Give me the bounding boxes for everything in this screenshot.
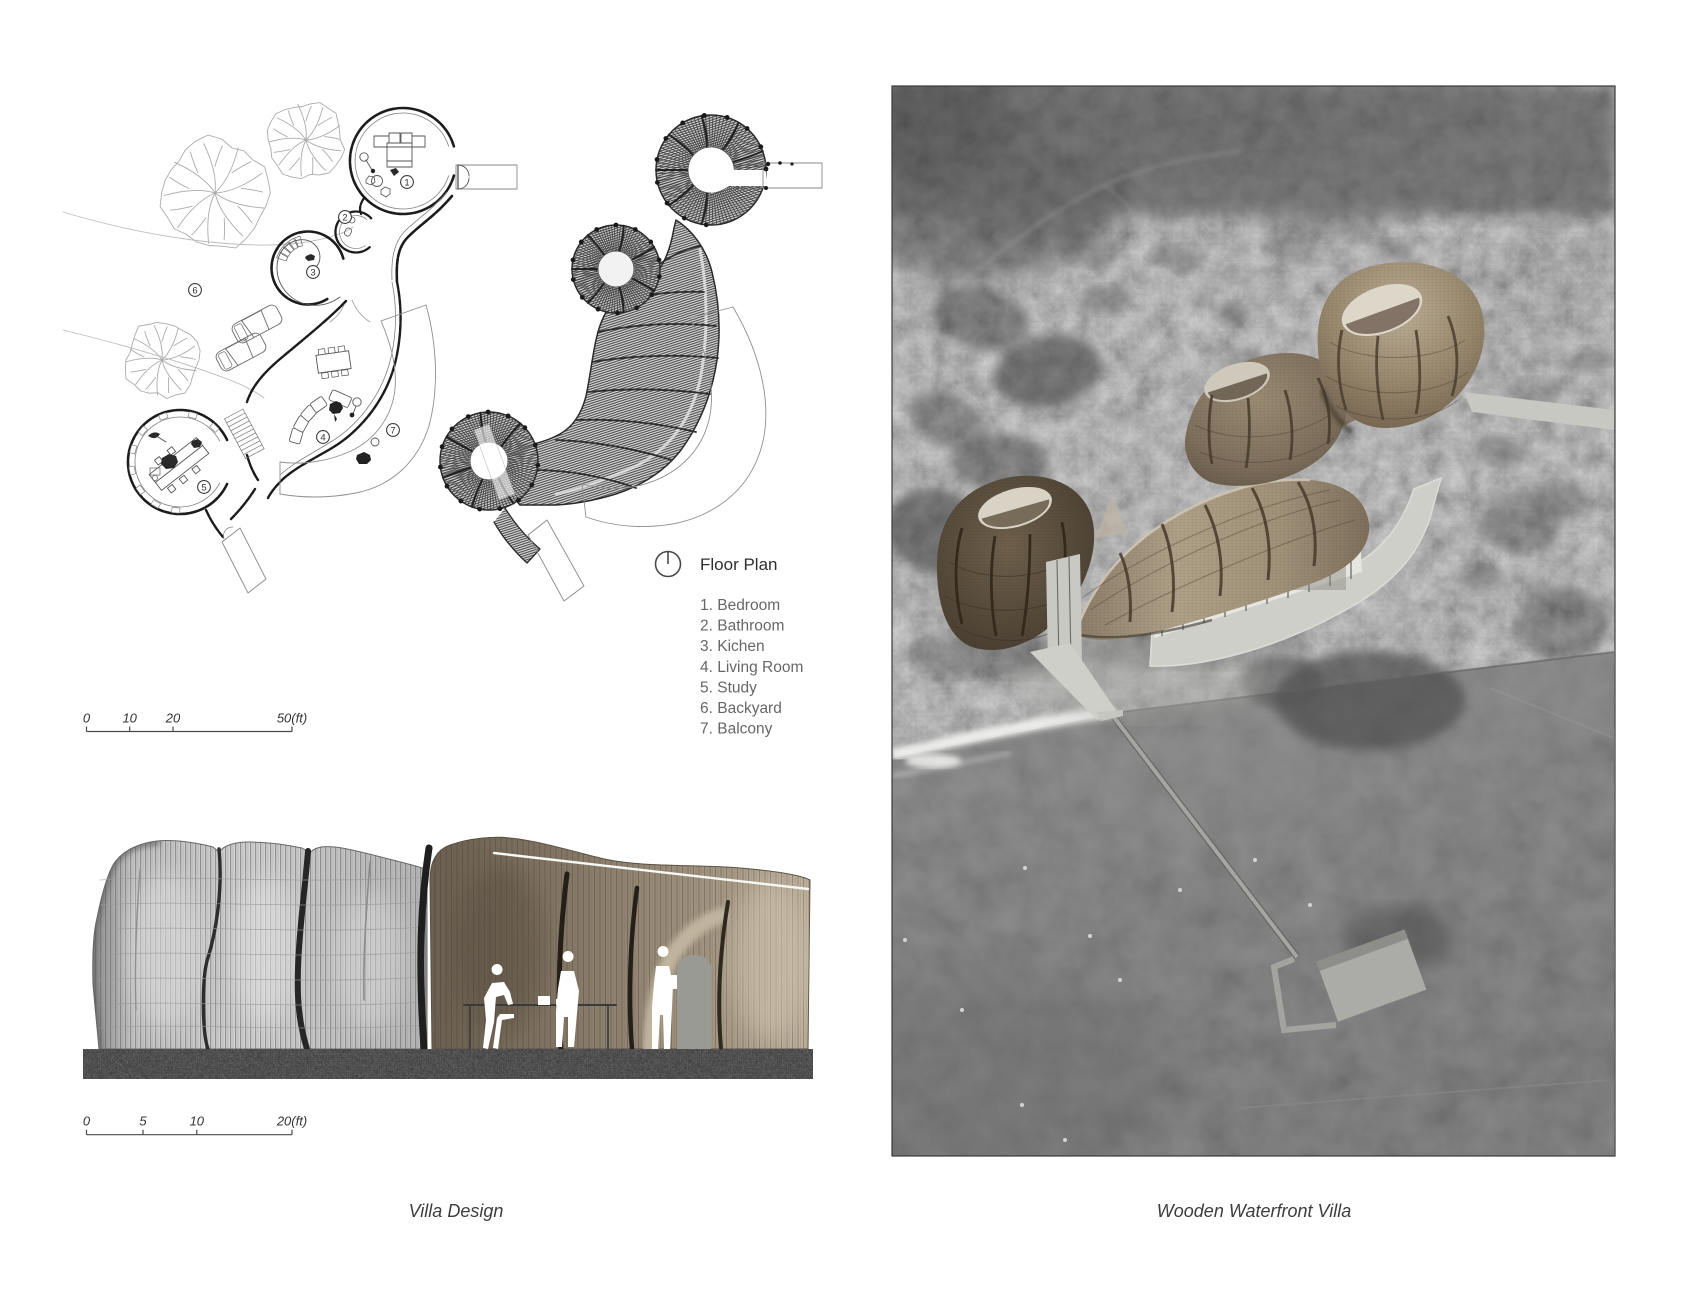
svg-text:5: 5: [201, 482, 206, 493]
svg-text:6: 6: [192, 285, 197, 296]
svg-text:0: 0: [83, 1114, 91, 1129]
svg-text:Wooden Waterfront Villa: Wooden Waterfront Villa: [1157, 1201, 1351, 1221]
svg-text:20(ft): 20(ft): [276, 1114, 307, 1129]
svg-text:50(ft): 50(ft): [277, 711, 307, 726]
svg-text:10: 10: [190, 1114, 205, 1129]
svg-text:6. Backyard: 6. Backyard: [700, 700, 782, 717]
svg-text:4. Living Room: 4. Living Room: [700, 659, 803, 676]
svg-text:20: 20: [165, 711, 181, 726]
svg-text:1. Bedroom: 1. Bedroom: [700, 597, 780, 614]
svg-text:2: 2: [342, 212, 347, 223]
svg-text:7. Balcony: 7. Balcony: [700, 721, 773, 738]
svg-text:5. Study: 5. Study: [700, 679, 757, 696]
svg-text:5: 5: [139, 1114, 147, 1129]
svg-text:10: 10: [122, 711, 137, 726]
svg-text:0: 0: [83, 711, 91, 726]
svg-text:2. Bathroom: 2. Bathroom: [700, 618, 784, 635]
svg-text:Floor Plan: Floor Plan: [700, 555, 777, 574]
svg-text:Villa Design: Villa Design: [409, 1201, 504, 1221]
svg-text:7: 7: [390, 425, 395, 436]
svg-text:3. Kichen: 3. Kichen: [700, 638, 765, 655]
svg-text:3: 3: [310, 267, 315, 278]
svg-text:4: 4: [320, 432, 325, 443]
svg-text:1: 1: [404, 177, 409, 188]
